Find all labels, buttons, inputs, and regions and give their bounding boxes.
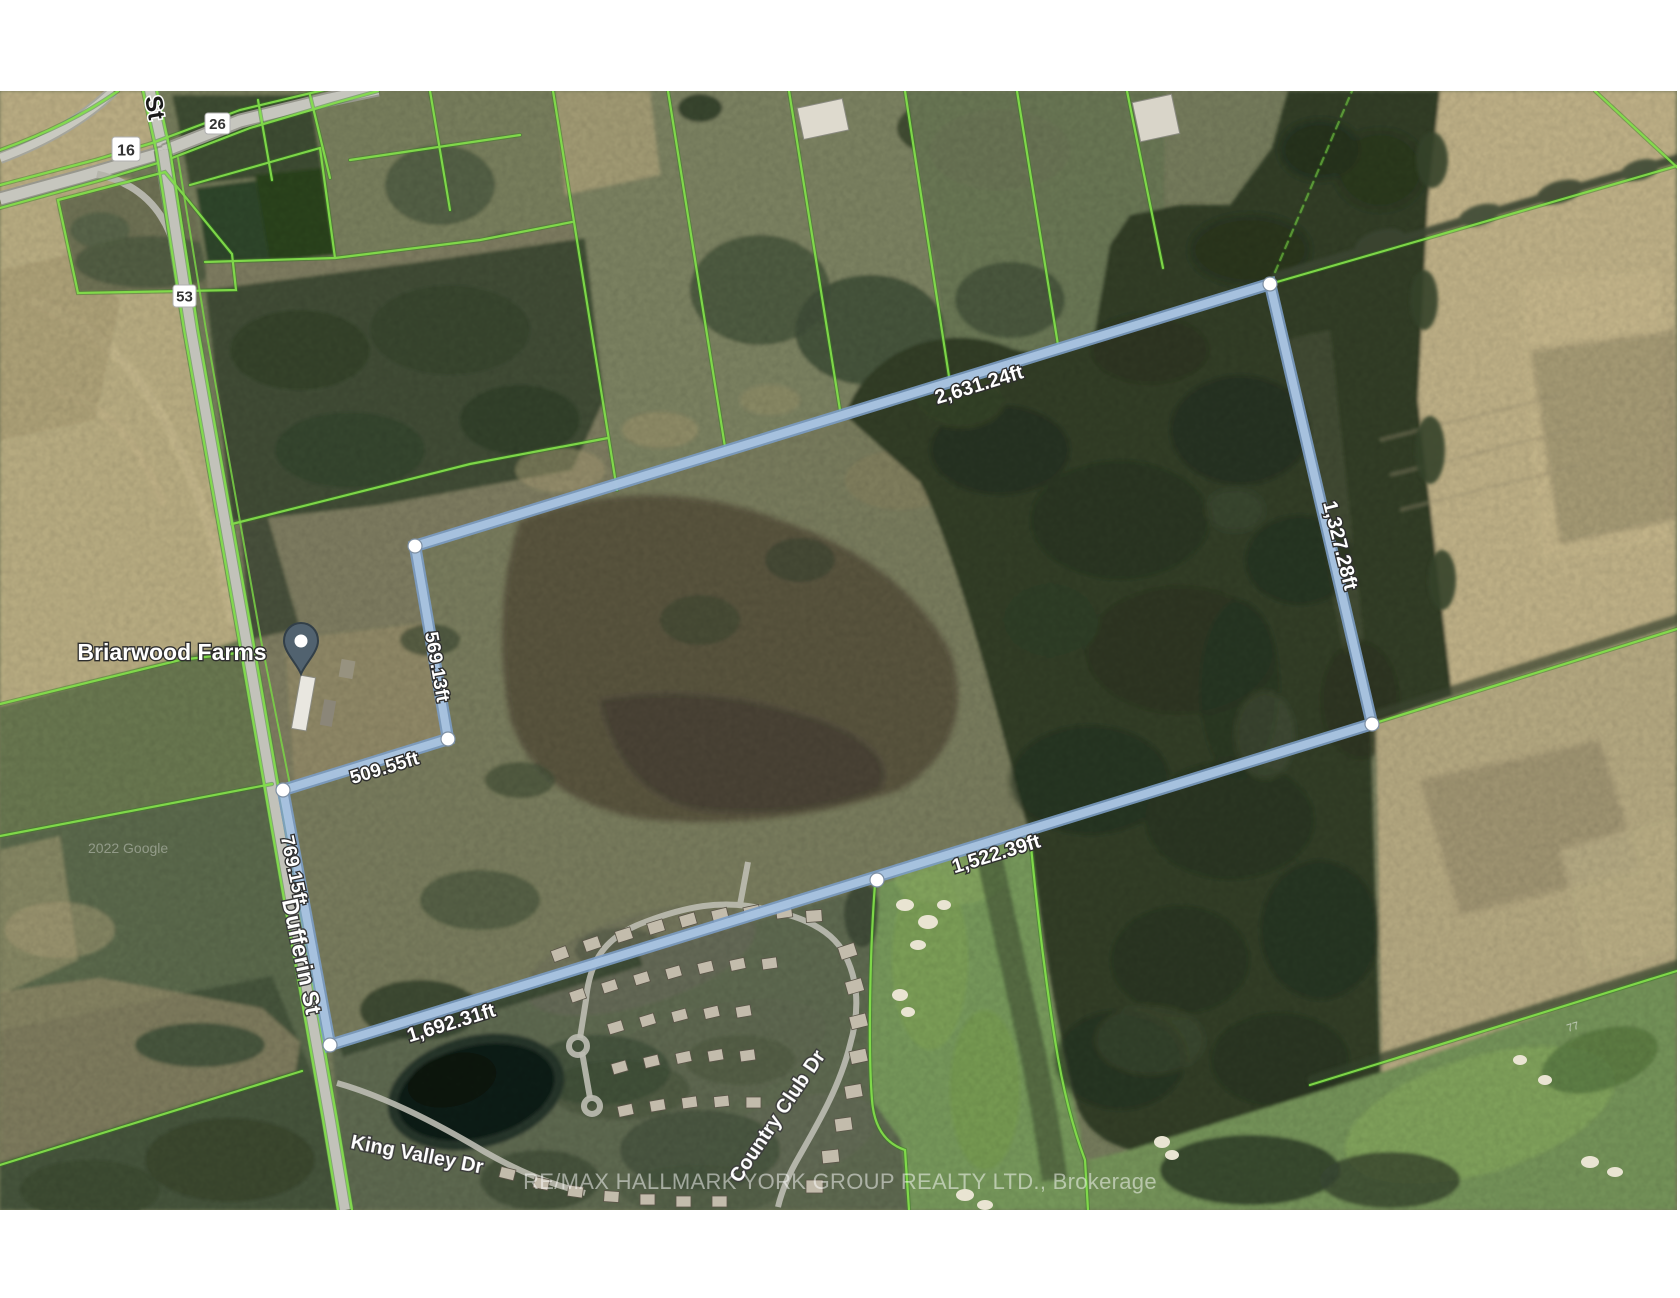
svg-text:Briarwood Farms: Briarwood Farms xyxy=(77,639,266,665)
svg-text:26: 26 xyxy=(209,116,226,133)
svg-text:St: St xyxy=(139,94,170,122)
svg-text:RE/MAX HALLMARK YORK GROUP REA: RE/MAX HALLMARK YORK GROUP REALTY LTD., … xyxy=(523,1169,1157,1194)
svg-text:53: 53 xyxy=(176,289,193,306)
svg-text:2022 Google: 2022 Google xyxy=(88,840,168,856)
svg-text:16: 16 xyxy=(117,143,135,160)
